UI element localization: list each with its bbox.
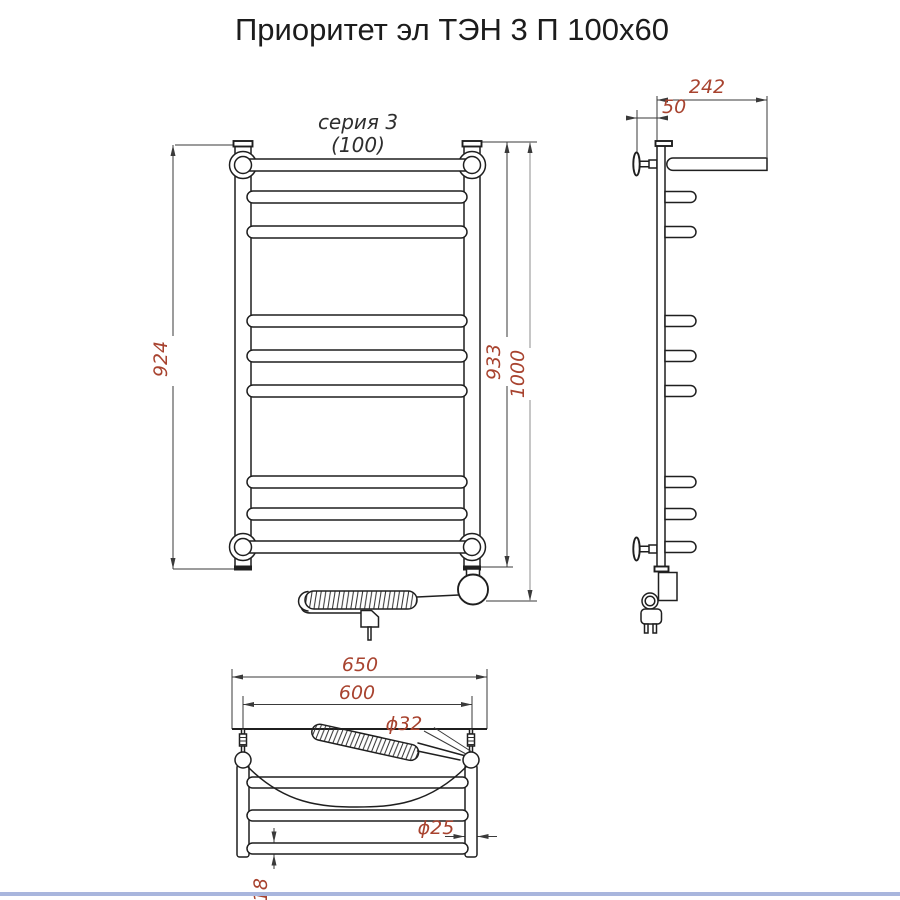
side-rung-stub	[665, 192, 696, 203]
side-rung-stub	[665, 351, 696, 362]
side-rung-stub	[665, 477, 696, 488]
power-plug	[361, 611, 379, 628]
front-rung	[247, 315, 467, 327]
wall-bracket-bottom	[633, 538, 657, 561]
side-heater-box	[659, 573, 678, 601]
technical-drawing: Приоритет эл ТЭН 3 П 100х60 серия 3 (100…	[0, 0, 900, 900]
dim-242-label: 242	[689, 76, 725, 98]
dim-600: 600	[243, 682, 472, 729]
front-rung	[247, 385, 467, 397]
plug-prong	[645, 624, 649, 633]
side-rung-stub	[665, 316, 696, 327]
series-label: серия 3	[318, 110, 398, 134]
side-post	[657, 145, 665, 568]
dim-50-label: 50	[662, 96, 686, 118]
front-rung	[247, 476, 467, 488]
dim-924: 924	[150, 145, 173, 569]
top-left-post	[237, 765, 249, 857]
post-bottom-cap	[234, 566, 252, 571]
front-view: серия 3 (100) 924 933 1000	[150, 110, 537, 640]
dim-phi25-label: ϕ25	[418, 817, 455, 839]
front-rung	[247, 191, 467, 203]
plug-pin	[368, 627, 371, 640]
side-post-top-cap	[656, 141, 673, 146]
front-rung-shelf	[243, 159, 472, 171]
plug-prong	[653, 624, 657, 633]
top-corner-fitting	[463, 752, 479, 768]
power-cord	[417, 595, 459, 597]
wall-bracket-top	[633, 153, 657, 176]
mount-pin-left	[240, 729, 247, 753]
dim-phi32-label: ϕ32	[386, 713, 423, 735]
top-corner-fitting	[235, 752, 251, 768]
power-cord-coil	[305, 591, 417, 609]
side-rung-stub	[665, 386, 696, 397]
top-rungs	[247, 777, 468, 854]
dim-933-label: 933	[483, 344, 505, 380]
dim-650-label: 650	[342, 654, 378, 676]
side-shelf-bar	[667, 158, 767, 170]
side-post-bottom-cap	[655, 567, 669, 572]
dim-933: 933	[483, 142, 507, 567]
dim-phi18-label: ϕ18	[250, 878, 272, 900]
side-rung-stubs	[665, 192, 696, 553]
dim-924-label: 924	[150, 341, 172, 377]
post-top-cap	[463, 141, 482, 147]
top-rung	[247, 777, 468, 788]
side-rung-stub	[665, 542, 696, 553]
dim-1000: 1000	[507, 142, 530, 601]
heater-ball	[458, 575, 488, 605]
side-rung-stub	[665, 509, 696, 520]
size-label: (100)	[331, 133, 385, 157]
footer-rule	[0, 892, 900, 896]
front-rung-bottom	[243, 541, 472, 553]
drawing-svg: Приоритет эл ТЭН 3 П 100х60 серия 3 (100…	[0, 0, 900, 900]
top-rung	[247, 843, 468, 854]
dim-600-label: 600	[339, 682, 375, 704]
dim-phi18: ϕ18	[250, 828, 274, 900]
post-top-cap	[234, 141, 253, 147]
front-rung	[247, 508, 467, 520]
cord-grommet-inner	[645, 596, 655, 606]
top-view: 650 600	[232, 654, 497, 900]
side-plug-body	[641, 609, 662, 624]
page-title: Приоритет эл ТЭН 3 П 100х60	[235, 12, 669, 47]
front-rung	[247, 350, 467, 362]
dim-1000-label: 1000	[507, 350, 529, 398]
side-view: 242 50	[626, 76, 767, 633]
front-rungs	[243, 159, 472, 553]
side-rung-stub	[665, 227, 696, 238]
front-rung	[247, 226, 467, 238]
